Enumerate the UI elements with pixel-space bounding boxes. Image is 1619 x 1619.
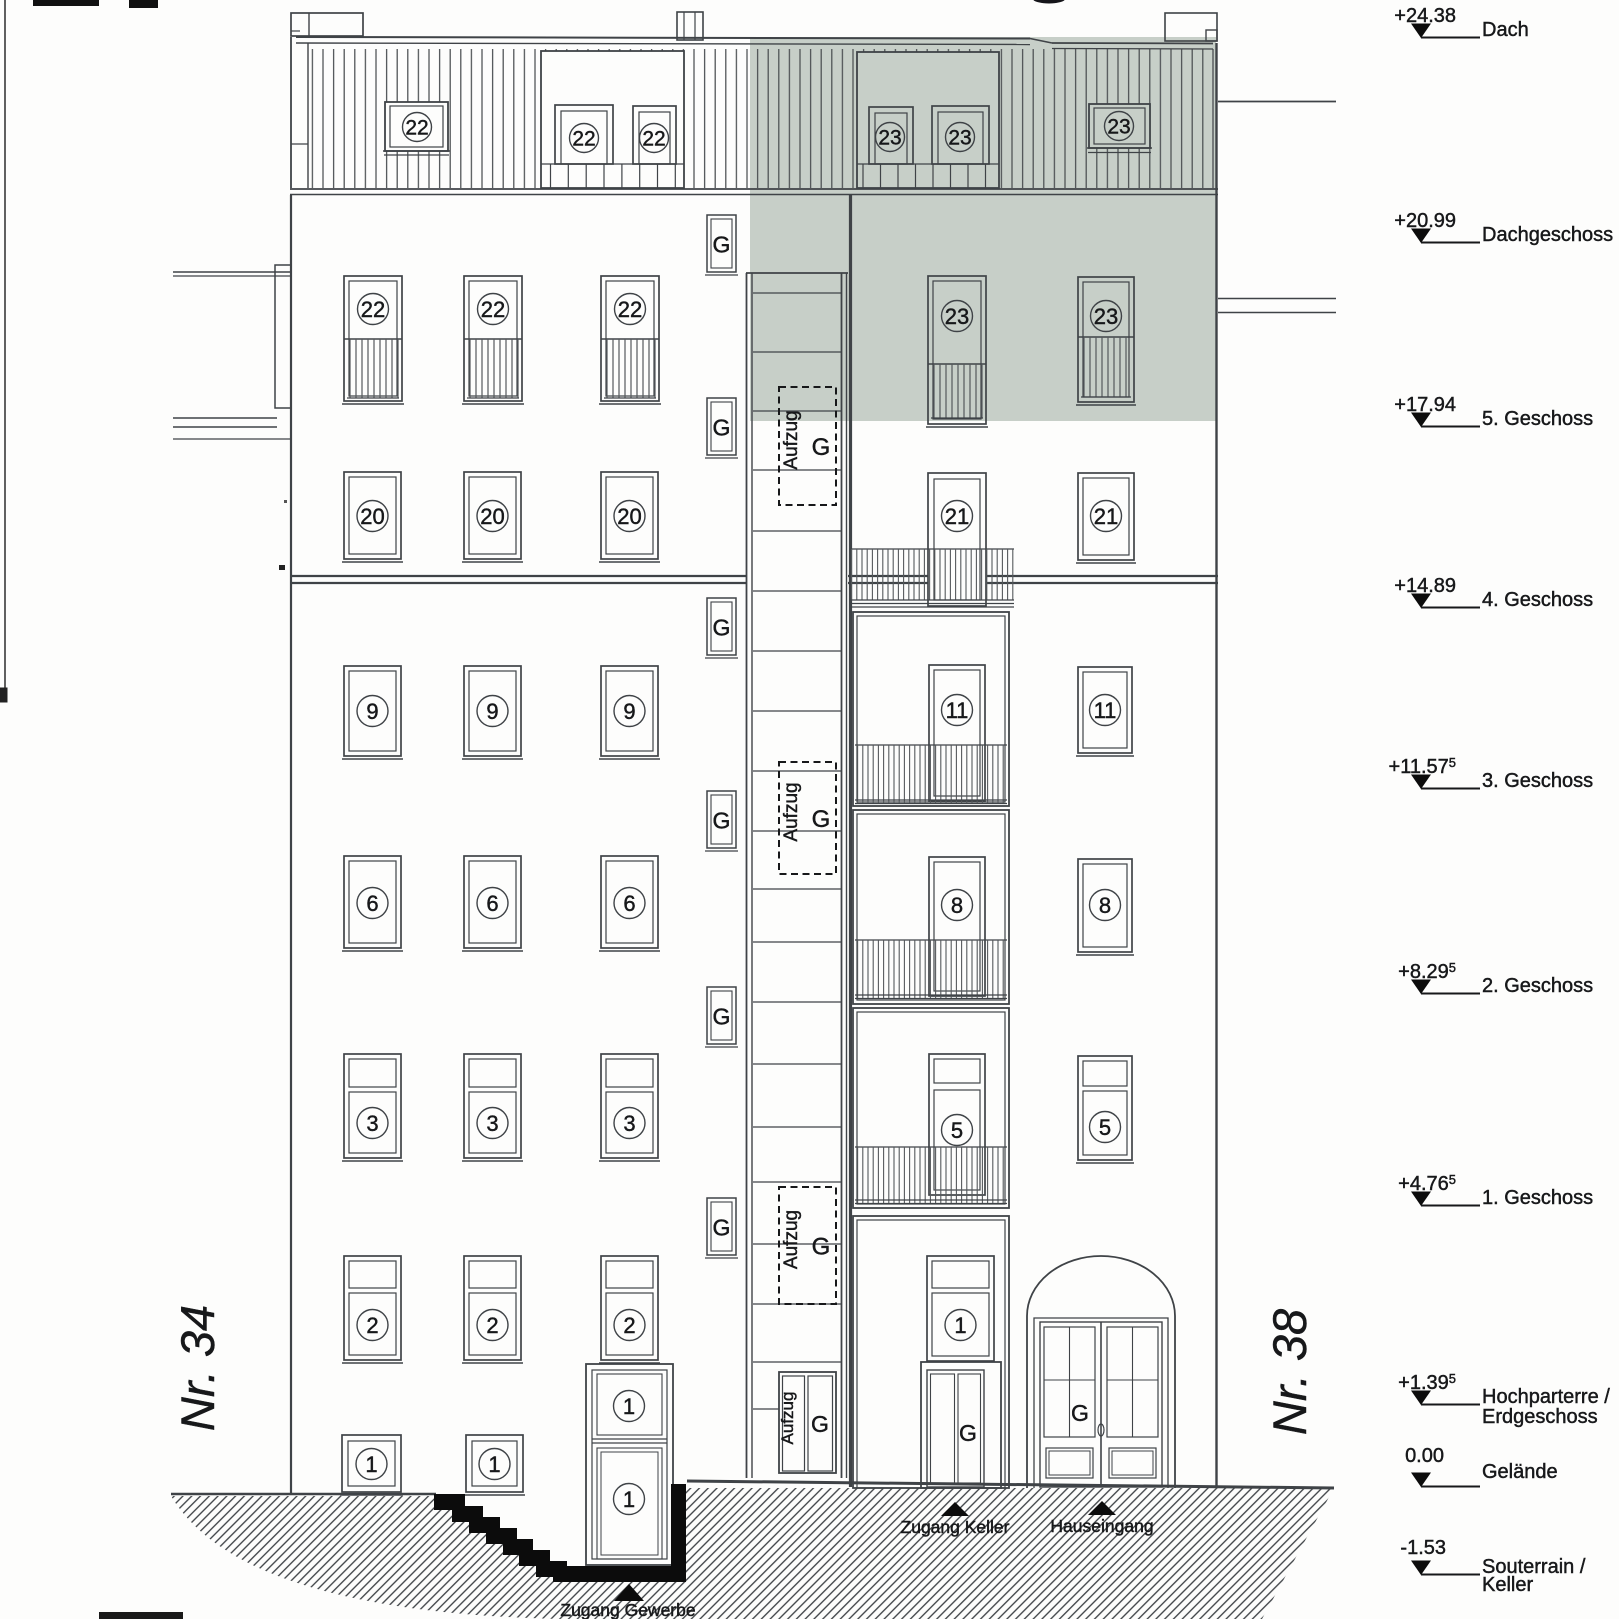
- svg-text:Keller: Keller: [1482, 1574, 1533, 1596]
- svg-text:+14.89: +14.89: [1394, 575, 1456, 597]
- svg-text:6: 6: [623, 891, 635, 916]
- svg-text:9: 9: [486, 699, 498, 724]
- svg-text:5. Geschoss: 5. Geschoss: [1482, 408, 1593, 430]
- svg-text:11: 11: [1094, 698, 1117, 723]
- svg-text:22: 22: [572, 128, 595, 151]
- svg-text:+4.765: +4.765: [1398, 1172, 1456, 1195]
- svg-text:Aufzug: Aufzug: [781, 782, 802, 841]
- svg-text:G: G: [713, 232, 731, 258]
- svg-text:2. Geschoss: 2. Geschoss: [1482, 975, 1593, 997]
- svg-text:20: 20: [480, 504, 504, 529]
- svg-text:G: G: [959, 1420, 977, 1446]
- svg-text:23: 23: [945, 304, 969, 329]
- svg-text:-1.53: -1.53: [1400, 1537, 1446, 1559]
- svg-text:Nr. 34: Nr. 34: [171, 1305, 224, 1431]
- svg-text:4. Geschoss: 4. Geschoss: [1482, 589, 1593, 611]
- svg-text:5: 5: [951, 1118, 963, 1143]
- svg-text:G: G: [713, 615, 731, 641]
- svg-text:G: G: [811, 1411, 829, 1437]
- svg-text:3. Geschoss: 3. Geschoss: [1482, 770, 1593, 792]
- svg-text:G: G: [713, 1215, 731, 1241]
- svg-text:+17.94: +17.94: [1394, 394, 1456, 416]
- svg-text:8: 8: [951, 893, 963, 918]
- svg-text:22: 22: [642, 128, 665, 151]
- svg-text:+24.38: +24.38: [1394, 5, 1456, 27]
- svg-text:1: 1: [623, 1487, 635, 1512]
- svg-text:+11.575: +11.575: [1389, 755, 1456, 778]
- svg-text:20: 20: [617, 504, 641, 529]
- svg-text:Nr. 38: Nr. 38: [1263, 1309, 1316, 1435]
- svg-text:22: 22: [361, 297, 385, 322]
- svg-text:6: 6: [486, 891, 498, 916]
- svg-text:Gelände: Gelände: [1482, 1461, 1558, 1483]
- svg-text:1. Geschoss: 1. Geschoss: [1482, 1187, 1593, 1209]
- svg-text:+1.395: +1.395: [1398, 1371, 1456, 1394]
- svg-text:+8.295: +8.295: [1398, 960, 1456, 983]
- svg-text:23: 23: [1094, 304, 1118, 329]
- svg-text:1: 1: [365, 1452, 377, 1477]
- svg-text:Aufzug: Aufzug: [778, 1392, 797, 1445]
- svg-text:2: 2: [623, 1313, 635, 1338]
- svg-text:G: G: [812, 806, 831, 833]
- svg-text:23: 23: [1107, 116, 1130, 139]
- svg-text:G: G: [812, 434, 831, 461]
- svg-text:21: 21: [945, 504, 969, 529]
- svg-text:1: 1: [488, 1452, 500, 1477]
- svg-text:21: 21: [1094, 504, 1118, 529]
- svg-text:Hochparterre /: Hochparterre /: [1482, 1386, 1610, 1408]
- svg-text:G: G: [713, 1004, 731, 1030]
- svg-text:Dachgeschoss: Dachgeschoss: [1482, 224, 1613, 246]
- svg-text:G: G: [713, 808, 731, 834]
- svg-text:G: G: [812, 1234, 831, 1261]
- svg-text:Aufzug: Aufzug: [781, 1210, 802, 1269]
- svg-text:3: 3: [486, 1111, 498, 1136]
- svg-text:23: 23: [948, 127, 971, 150]
- svg-text:3: 3: [623, 1111, 635, 1136]
- svg-text:5: 5: [1099, 1115, 1111, 1140]
- svg-text:1: 1: [954, 1313, 966, 1338]
- svg-text:0.00: 0.00: [1405, 1445, 1444, 1467]
- svg-text:8: 8: [1099, 893, 1111, 918]
- svg-text:9: 9: [366, 699, 378, 724]
- svg-text:22: 22: [405, 117, 428, 140]
- svg-text:Erdgeschoss: Erdgeschoss: [1482, 1406, 1598, 1428]
- svg-text:G: G: [1071, 1400, 1089, 1426]
- svg-text:2: 2: [366, 1313, 378, 1338]
- svg-text:6: 6: [366, 891, 378, 916]
- svg-text:1: 1: [623, 1394, 635, 1419]
- svg-text:11: 11: [946, 698, 969, 723]
- svg-text:+20.99: +20.99: [1394, 210, 1456, 232]
- svg-text:22: 22: [481, 297, 505, 322]
- svg-text:Dach: Dach: [1482, 19, 1529, 41]
- svg-text:Hauseingang: Hauseingang: [1050, 1516, 1153, 1536]
- svg-text:9: 9: [623, 699, 635, 724]
- svg-text:G: G: [713, 415, 731, 441]
- svg-text:Aufzug: Aufzug: [781, 410, 802, 469]
- svg-text:22: 22: [618, 297, 642, 322]
- svg-text:20: 20: [360, 504, 384, 529]
- svg-text:3: 3: [366, 1111, 378, 1136]
- svg-text:23: 23: [878, 127, 901, 150]
- svg-text:Zugang Gewerbe: Zugang Gewerbe: [560, 1600, 695, 1619]
- svg-text:Zugang Keller: Zugang Keller: [901, 1517, 1010, 1537]
- svg-text:2: 2: [486, 1313, 498, 1338]
